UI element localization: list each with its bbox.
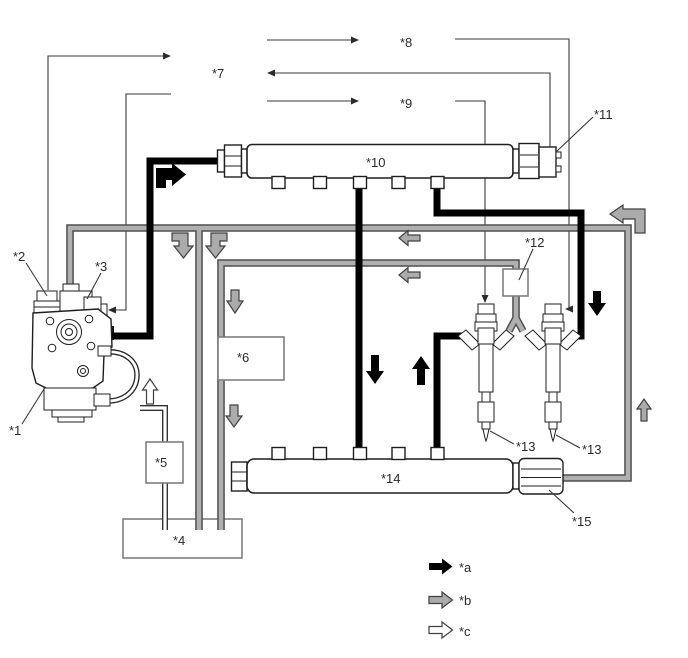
rail14-port-3 [354,448,367,460]
callout-2: *2 [13,249,25,264]
callout-4: *4 [173,533,185,548]
gray-hook-down-arrow-left-icon [172,233,193,258]
callout-3: *3 [95,259,107,274]
pump-bolt-1 [46,317,54,325]
pump-lower-body [44,388,96,410]
right-injector-body [546,344,560,392]
legend-label-b: *b [459,593,471,608]
arrowhead-into-9 [351,98,359,105]
black-down-arrow-right-icon [588,291,606,316]
left-injector-neck [482,392,490,402]
pressure-sensor-11 [539,147,556,177]
sensor-pin-2 [556,166,561,172]
right-injector-right-port [559,330,581,350]
left-injector-nozzle [483,429,489,441]
gray-hook-down-arrow-right-icon [206,233,227,258]
gray-up-arrow-icon [637,399,651,421]
right-injector-left-port [525,330,547,350]
pump-bolt-4 [87,342,95,350]
callout-13-right: *13 [582,442,602,457]
rail10-port-2 [314,177,327,189]
pump-bolt-2 [85,315,93,323]
pump-foot-tab [58,417,84,422]
cooler-box-6 [218,337,284,380]
legend-label-a: *a [459,560,472,575]
callout-11: *11 [594,107,613,122]
callout-6: *6 [237,350,249,365]
pump-top-cap [63,284,79,291]
black-bent-arrow-icon [156,163,186,188]
white-up-arrow-icon [143,379,158,404]
callout-12: *12 [525,235,545,250]
pump-foot [52,410,92,417]
black-up-arrow-icon [412,356,430,385]
left-injector-solenoid [478,402,494,422]
rail14-left-nut [232,462,248,491]
legend-label-c: *c [459,624,471,639]
arrowhead-into-7-left [163,53,171,60]
pointer-13-right [556,435,580,448]
rail10-port-4 [392,177,405,189]
callout-10: *10 [366,155,386,170]
left-injector-left-port [458,330,480,350]
callout-5: *5 [155,455,167,470]
left-injector-cap [476,314,496,322]
rail14-port-4 [392,448,405,460]
rail10-washer [218,150,225,172]
pointer-11 [556,117,593,152]
right-injector-nozzle [550,429,556,441]
arrowhead-into-8 [351,37,359,44]
pointer-3 [87,273,101,299]
callout-13-left: *13 [516,439,536,454]
rail14-right-collar [513,463,519,489]
gray-left-arrow-lower-icon [399,268,420,283]
rail14-body [247,459,513,493]
gray-left-arrow-upper-icon [399,231,420,246]
right-injector-solenoid [545,402,561,422]
callout-9: *9 [400,96,412,111]
callout-7: *7 [212,66,224,81]
legend-gray-arrow-icon [429,592,453,608]
rail10-right-collar [513,149,519,173]
signal-line-2-to-7 [48,56,163,290]
rail10-port-3 [354,177,367,189]
left-injector-lower-stub [482,422,490,429]
sensor-pin-1 [556,152,561,158]
pump-plug-inner [81,369,86,374]
rail14-port-1 [272,448,285,460]
fuel-system-diagram: *a *b *c *1 *2 *3 *4 *5 *6 *7 *8 *9 *10 … [0,0,688,658]
rail14-port-5 [431,448,444,460]
rail10-right-nut [519,144,539,179]
end-fitting-15 [519,459,563,495]
callout-14: *14 [381,471,401,486]
injector-13-left [458,304,514,441]
right-injector-connector [545,304,561,314]
gray-down-arrow-upper-icon [227,290,243,313]
legend-black-arrow-icon [429,559,453,575]
rail-to-left-injector-pipe [437,336,463,452]
right-injector-neck [549,392,557,402]
upper-rail-10 [218,144,562,189]
arrowhead-into-left-injector [482,295,489,303]
signal-line-11-to-7 [275,73,550,147]
signal-line-7-to-3 [116,94,171,310]
rail14-port-2 [314,448,327,460]
rail10-left-nut [225,145,242,177]
pump-bolt-3 [48,344,56,352]
pump-boss-inner [66,329,73,336]
left-injector-connector [478,304,494,314]
legend: *a *b *c [429,559,472,640]
arrowhead-into-3 [108,307,116,314]
arrowhead-into-7-right [267,70,275,77]
injector-13-right [525,304,581,441]
pointer-1 [22,389,44,424]
left-injector-body [479,344,493,392]
left-injector-right-port [492,330,514,350]
callout-1: *1 [9,423,21,438]
high-pressure-pipes [98,161,581,452]
gray-down-arrow-lower-icon [226,405,242,427]
right-injector-lower-stub [549,422,557,429]
black-down-arrow-icon [366,355,384,384]
pointer-13-left [490,431,514,444]
callout-8: *8 [400,35,412,50]
supply-pump-1 [32,284,137,422]
pump-inlet-fitting [94,394,110,406]
rail10-port-5 [431,177,444,189]
rail10-port-1 [272,177,285,189]
right-injector-cap [543,314,563,322]
diagram-canvas: *a *b *c *1 *2 *3 *4 *5 *6 *7 *8 *9 *10 … [0,0,688,658]
left-injector-upper-body [478,328,494,344]
legend-white-arrow-icon [429,622,453,638]
callout-15: *15 [572,514,592,529]
pump-banjo-fitting [98,346,111,356]
valve-box-12 [503,269,528,296]
right-injector-upper-body [545,328,561,344]
